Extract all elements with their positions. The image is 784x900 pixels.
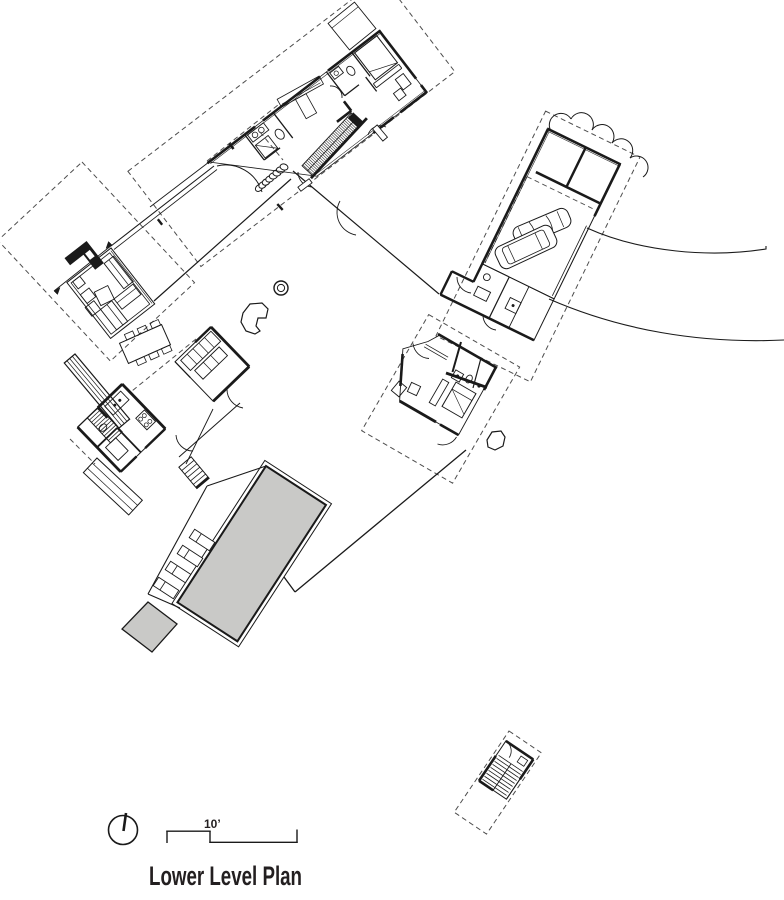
svg-text:Lower Level Plan: Lower Level Plan xyxy=(149,861,302,891)
svg-text:10’: 10’ xyxy=(204,817,221,831)
